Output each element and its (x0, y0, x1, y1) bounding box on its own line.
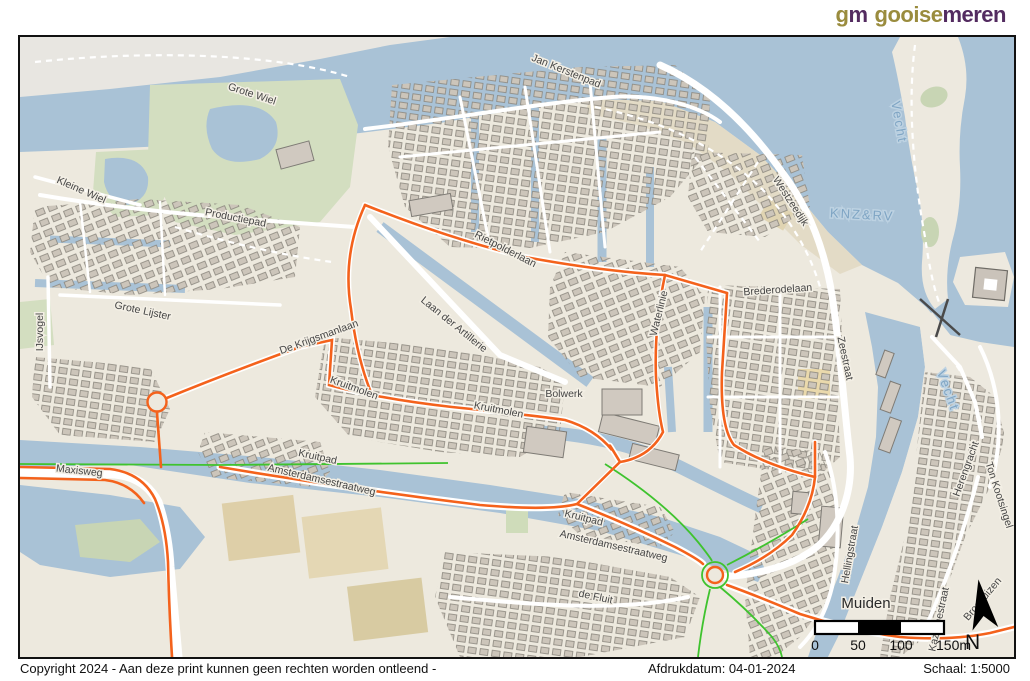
area-label-bolwerk: Bolwerk (545, 388, 583, 400)
roundabout-muiden (707, 567, 723, 583)
logo-word-gooise: gooise (875, 2, 943, 27)
scale-tick-100: 100 (889, 637, 913, 653)
copyright-text: Copyright 2024 - Aan deze print kunnen g… (20, 661, 436, 676)
fort-court (983, 278, 997, 290)
gooisemeren-logo: gmgooisemeren (836, 2, 1006, 28)
logo-mark-g: g (836, 2, 849, 27)
street-label-ijsvogel: IJsvogel (34, 313, 46, 352)
sports-field-1 (222, 495, 301, 561)
north-arrow-label: N (965, 631, 980, 654)
print-page: gmgooisemeren (0, 0, 1030, 681)
print-footer: Copyright 2024 - Aan deze print kunnen g… (0, 659, 1030, 681)
logo-word-meren: meren (942, 2, 1006, 27)
roundabout-west (148, 393, 167, 412)
map-svg: Jan Kerstenpad Grote Wiel Kleine Wiel Pr… (20, 37, 1014, 657)
sports-field-2 (302, 507, 389, 578)
scale-text: Schaal: 1:5000 (923, 661, 1010, 676)
logo-mark-m: m (848, 2, 867, 27)
town-label-muiden: Muiden (841, 595, 890, 612)
map-canvas: Jan Kerstenpad Grote Wiel Kleine Wiel Pr… (18, 35, 1016, 659)
scale-tick-0: 0 (811, 637, 819, 653)
print-date: Afdrukdatum: 04-01-2024 (648, 661, 795, 676)
scale-tick-50: 50 (850, 637, 866, 653)
sports-field-3 (347, 578, 428, 642)
pond-grote-wiel (206, 105, 277, 162)
